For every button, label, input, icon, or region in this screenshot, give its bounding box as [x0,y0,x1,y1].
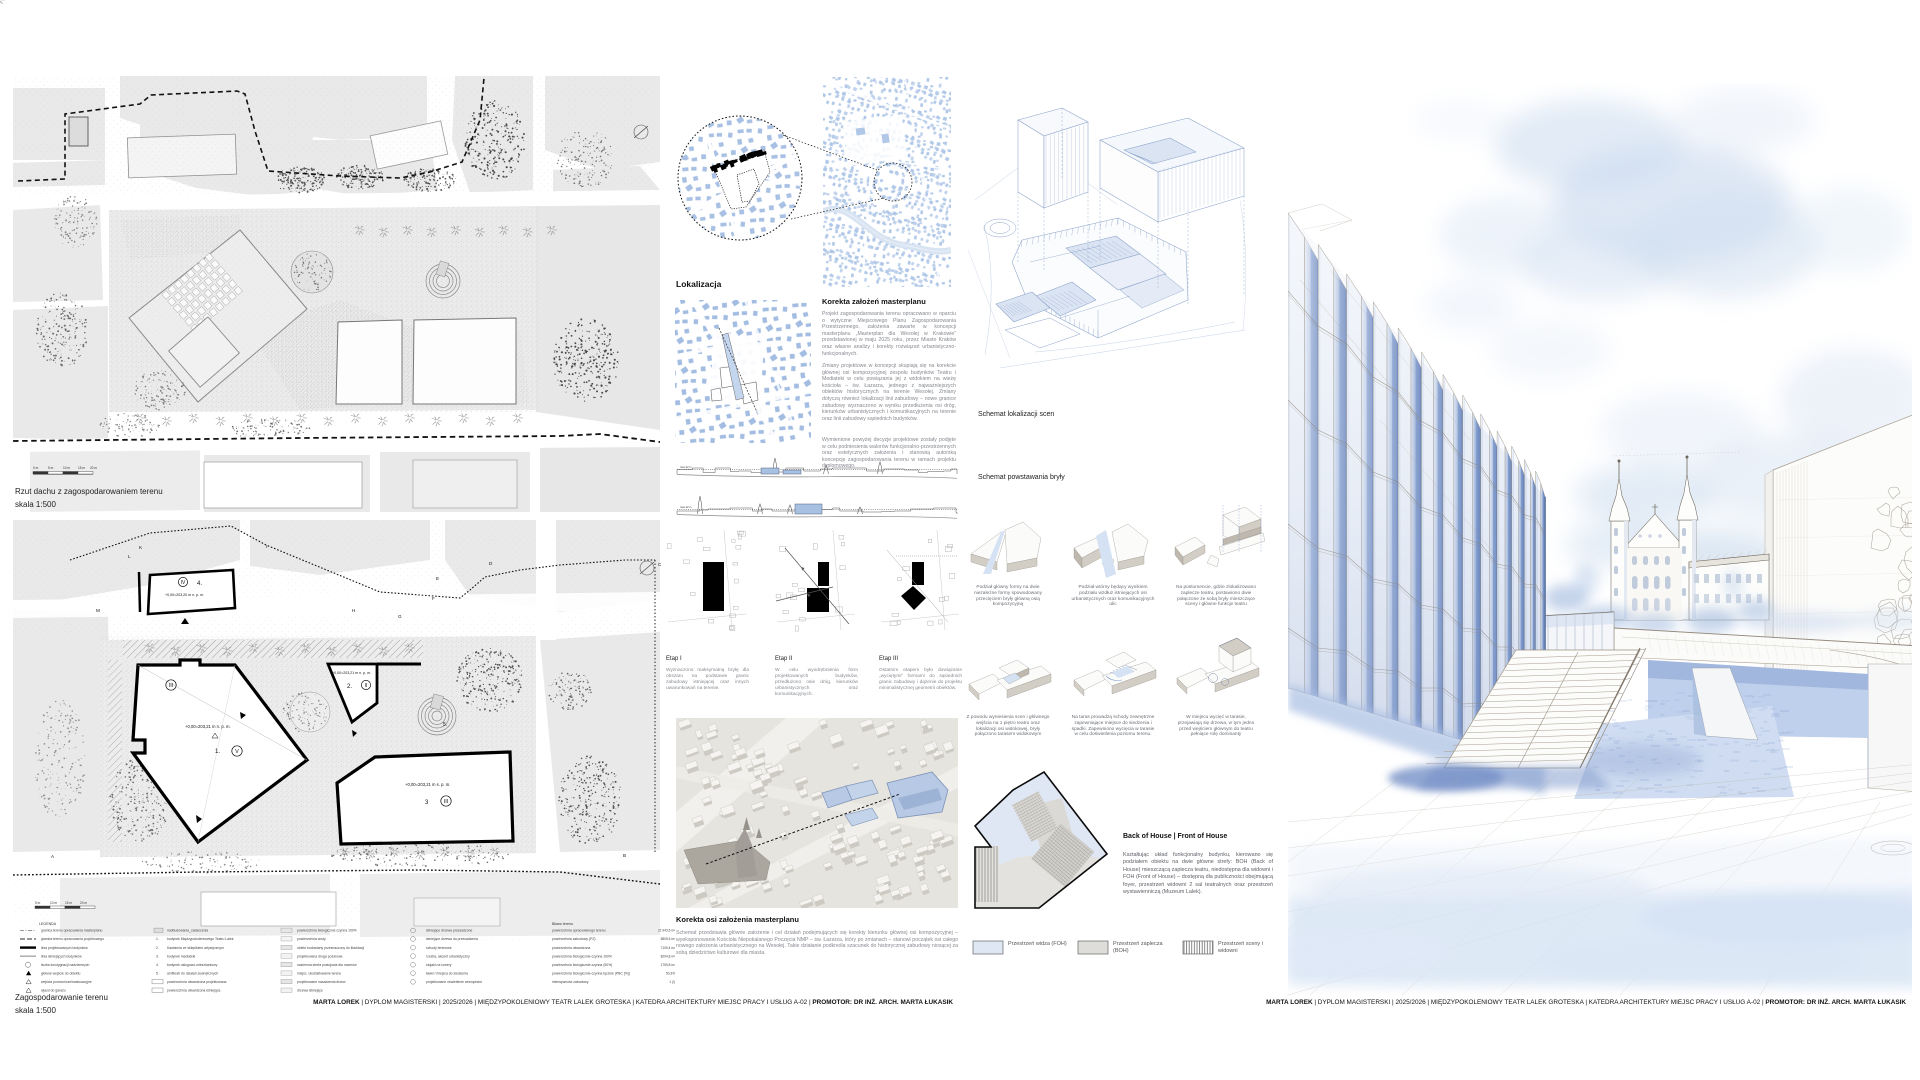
svg-text:stojaki na rowery: stojaki na rowery [426,963,452,967]
svg-text:4.: 4. [197,581,202,587]
svg-text:powierzchnia utwardzona istnie: powierzchnia utwardzona istniejąca [167,989,220,993]
svg-text:projektowane nasadzenia drzew: projektowane nasadzenia drzew [297,980,346,984]
svg-text:rzeźba, akcent urbanistyczny: rzeźba, akcent urbanistyczny [426,954,470,958]
svg-text:5.: 5. [156,972,159,976]
svg-text:powierzchnia opracowanego tere: powierzchnia opracowanego terenu [552,929,606,933]
svg-text:2.: 2. [156,946,159,950]
svg-text:10 m: 10 m [63,466,70,470]
svg-text:linia istniejących budynków: linia istniejących budynków [41,954,82,958]
svg-text:budynek mediateki: budynek mediateki [167,954,196,958]
svg-text:powierzchnia utwardzona: powierzchnia utwardzona [552,946,590,950]
svg-text:nadbudowania_zadaszenia: nadbudowania_zadaszenia [167,929,208,933]
svg-text:miejsc. ukształtowanie terenu: miejsc. ukształtowanie terenu [297,972,341,976]
svg-text:linia projektowanych budynków: linia projektowanych budynków [41,946,88,950]
svg-text:0 m: 0 m [33,466,39,470]
svg-text:8294,8 m²: 8294,8 m² [661,954,675,958]
svg-text:budynek Międzypokoleniowego Te: budynek Międzypokoleniowego Teatru Lalek [167,937,234,941]
svg-text:1 (I): 1 (I) [669,980,675,984]
svg-text:budynek usługowo-mieszkaniowy: budynek usługowo-mieszkaniowy [167,963,218,967]
svg-text:+0,00=203,21 m n. p. m.: +0,00=203,21 m n. p. m. [185,724,231,729]
svg-text:50,3%: 50,3% [666,972,675,976]
svg-text:granica terenu opracowania pro: granica terenu opracowania projektowego [41,937,104,941]
svg-text:B: B [623,853,626,858]
svg-text:naziemna strefa postojowa dla: naziemna strefa postojowa dla rowerów [297,963,357,967]
svg-text:obiekt budowlany przeznaczony: obiekt budowlany przeznaczony do likwida… [297,946,364,950]
svg-text:15 m: 15 m [65,901,72,905]
svg-text:1759,8 m²: 1759,8 m² [661,963,675,967]
svg-text:powierzchnia utwardzona projek: powierzchnia utwardzona projektowana [167,980,226,984]
svg-text:E: E [436,576,439,581]
svg-text:ławki / miejsca do siedzenia: ławki / miejsca do siedzenia [426,972,468,976]
svg-text:1.: 1. [215,749,220,755]
svg-text:3.: 3. [156,954,159,958]
svg-text:F: F [432,596,435,601]
svg-text:5 m: 5 m [48,466,54,470]
svg-text:istniejące drzewa do przesadze: istniejące drzewa do przesadzenia [426,937,478,941]
svg-text:II: II [365,683,368,689]
svg-text:20 m: 20 m [90,466,97,470]
svg-text:+0,00=203,21 m s. p. m.: +0,00=203,21 m s. p. m. [405,782,450,787]
svg-text:powierzchnia biologicznie czyn: powierzchnia biologicznie czynna 100% [297,929,357,933]
svg-text:max 22 m: max 22 m [680,505,691,509]
svg-text:+0,00=203,21 m n. p. m.: +0,00=203,21 m n. p. m. [332,671,371,675]
svg-text:amfiteatr do działań zewnętrzn: amfiteatr do działań zewnętrznych [167,972,218,976]
svg-text:liczba kondygnacji nadziemnych: liczba kondygnacji nadziemnych [41,963,90,967]
svg-text:schody terenowe: schody terenowe [426,946,452,950]
svg-text:LEGENDA: LEGENDA [39,922,57,926]
svg-text:M: M [96,608,100,613]
svg-text:powierzchnia biologicznie-czyn: powierzchnia biologicznie-czynna 100% [552,954,612,958]
svg-text:Bilans terenu: Bilans terenu [552,922,573,926]
svg-text:wjazd do garażu: wjazd do garażu [41,989,66,993]
svg-text:powierzchnia zabudowy (PZ): powierzchnia zabudowy (PZ) [552,937,596,941]
svg-text:10 m: 10 m [50,901,57,905]
svg-text:H: H [352,608,355,613]
svg-text:istniejące drzewa przesadzone: istniejące drzewa przesadzone [426,929,472,933]
svg-text:1.: 1. [156,937,159,941]
svg-text:C: C [658,562,662,567]
svg-text:projektowane oświetlenie zewnę: projektowane oświetlenie zewnętrzne [426,980,482,984]
svg-text:5 m: 5 m [35,901,41,905]
svg-text:G: G [398,614,402,619]
svg-text:2.: 2. [347,684,352,690]
svg-text:powierzchnia biologicznie-czyn: powierzchnia biologicznie-czynna (50%) [552,963,612,967]
svg-text:V: V [235,749,239,755]
svg-text:projektowana droga pożarowa: projektowana droga pożarowa [297,954,343,958]
svg-text:granica terenu opracowania mas: granica terenu opracowania masterplanu [41,929,103,933]
svg-text:I: I [266,544,267,549]
svg-text:intensywność zabudowy: intensywność zabudowy [552,980,589,984]
svg-text:5.: 5. [443,722,447,728]
svg-text:max 22 m: max 22 m [680,465,691,469]
svg-text:+0,00=203,20 m n. p. m.: +0,00=203,20 m n. p. m. [165,593,204,597]
svg-text:Kawiarnia ze sklepikiem artyst: Kawiarnia ze sklepikiem artystycznym [167,946,224,950]
svg-text:główne wejście do obiektu: główne wejście do obiektu [41,972,81,976]
svg-text:21 943,5 m²: 21 943,5 m² [658,929,675,933]
svg-text:wejścia pomocnicze/ewakuacyjne: wejścia pomocnicze/ewakuacyjne [41,980,92,984]
svg-text:L: L [128,554,131,559]
svg-text:4.: 4. [156,963,159,967]
svg-text:III: III [169,683,174,689]
svg-text:powierzchnia biologicznie-czyn: powierzchnia biologicznie-czynna łącznie… [552,972,630,976]
svg-text:drzewa istniejące: drzewa istniejące [297,989,323,993]
svg-text:III: III [444,799,449,805]
svg-text:15 m: 15 m [78,466,85,470]
svg-text:20 m: 20 m [80,901,87,905]
svg-text:IV: IV [181,580,186,586]
svg-text:powierzchnia wody: powierzchnia wody [297,937,326,941]
svg-text:7105,4 m²: 7105,4 m² [661,946,675,950]
svg-text:5805,5 m²: 5805,5 m² [661,937,675,941]
